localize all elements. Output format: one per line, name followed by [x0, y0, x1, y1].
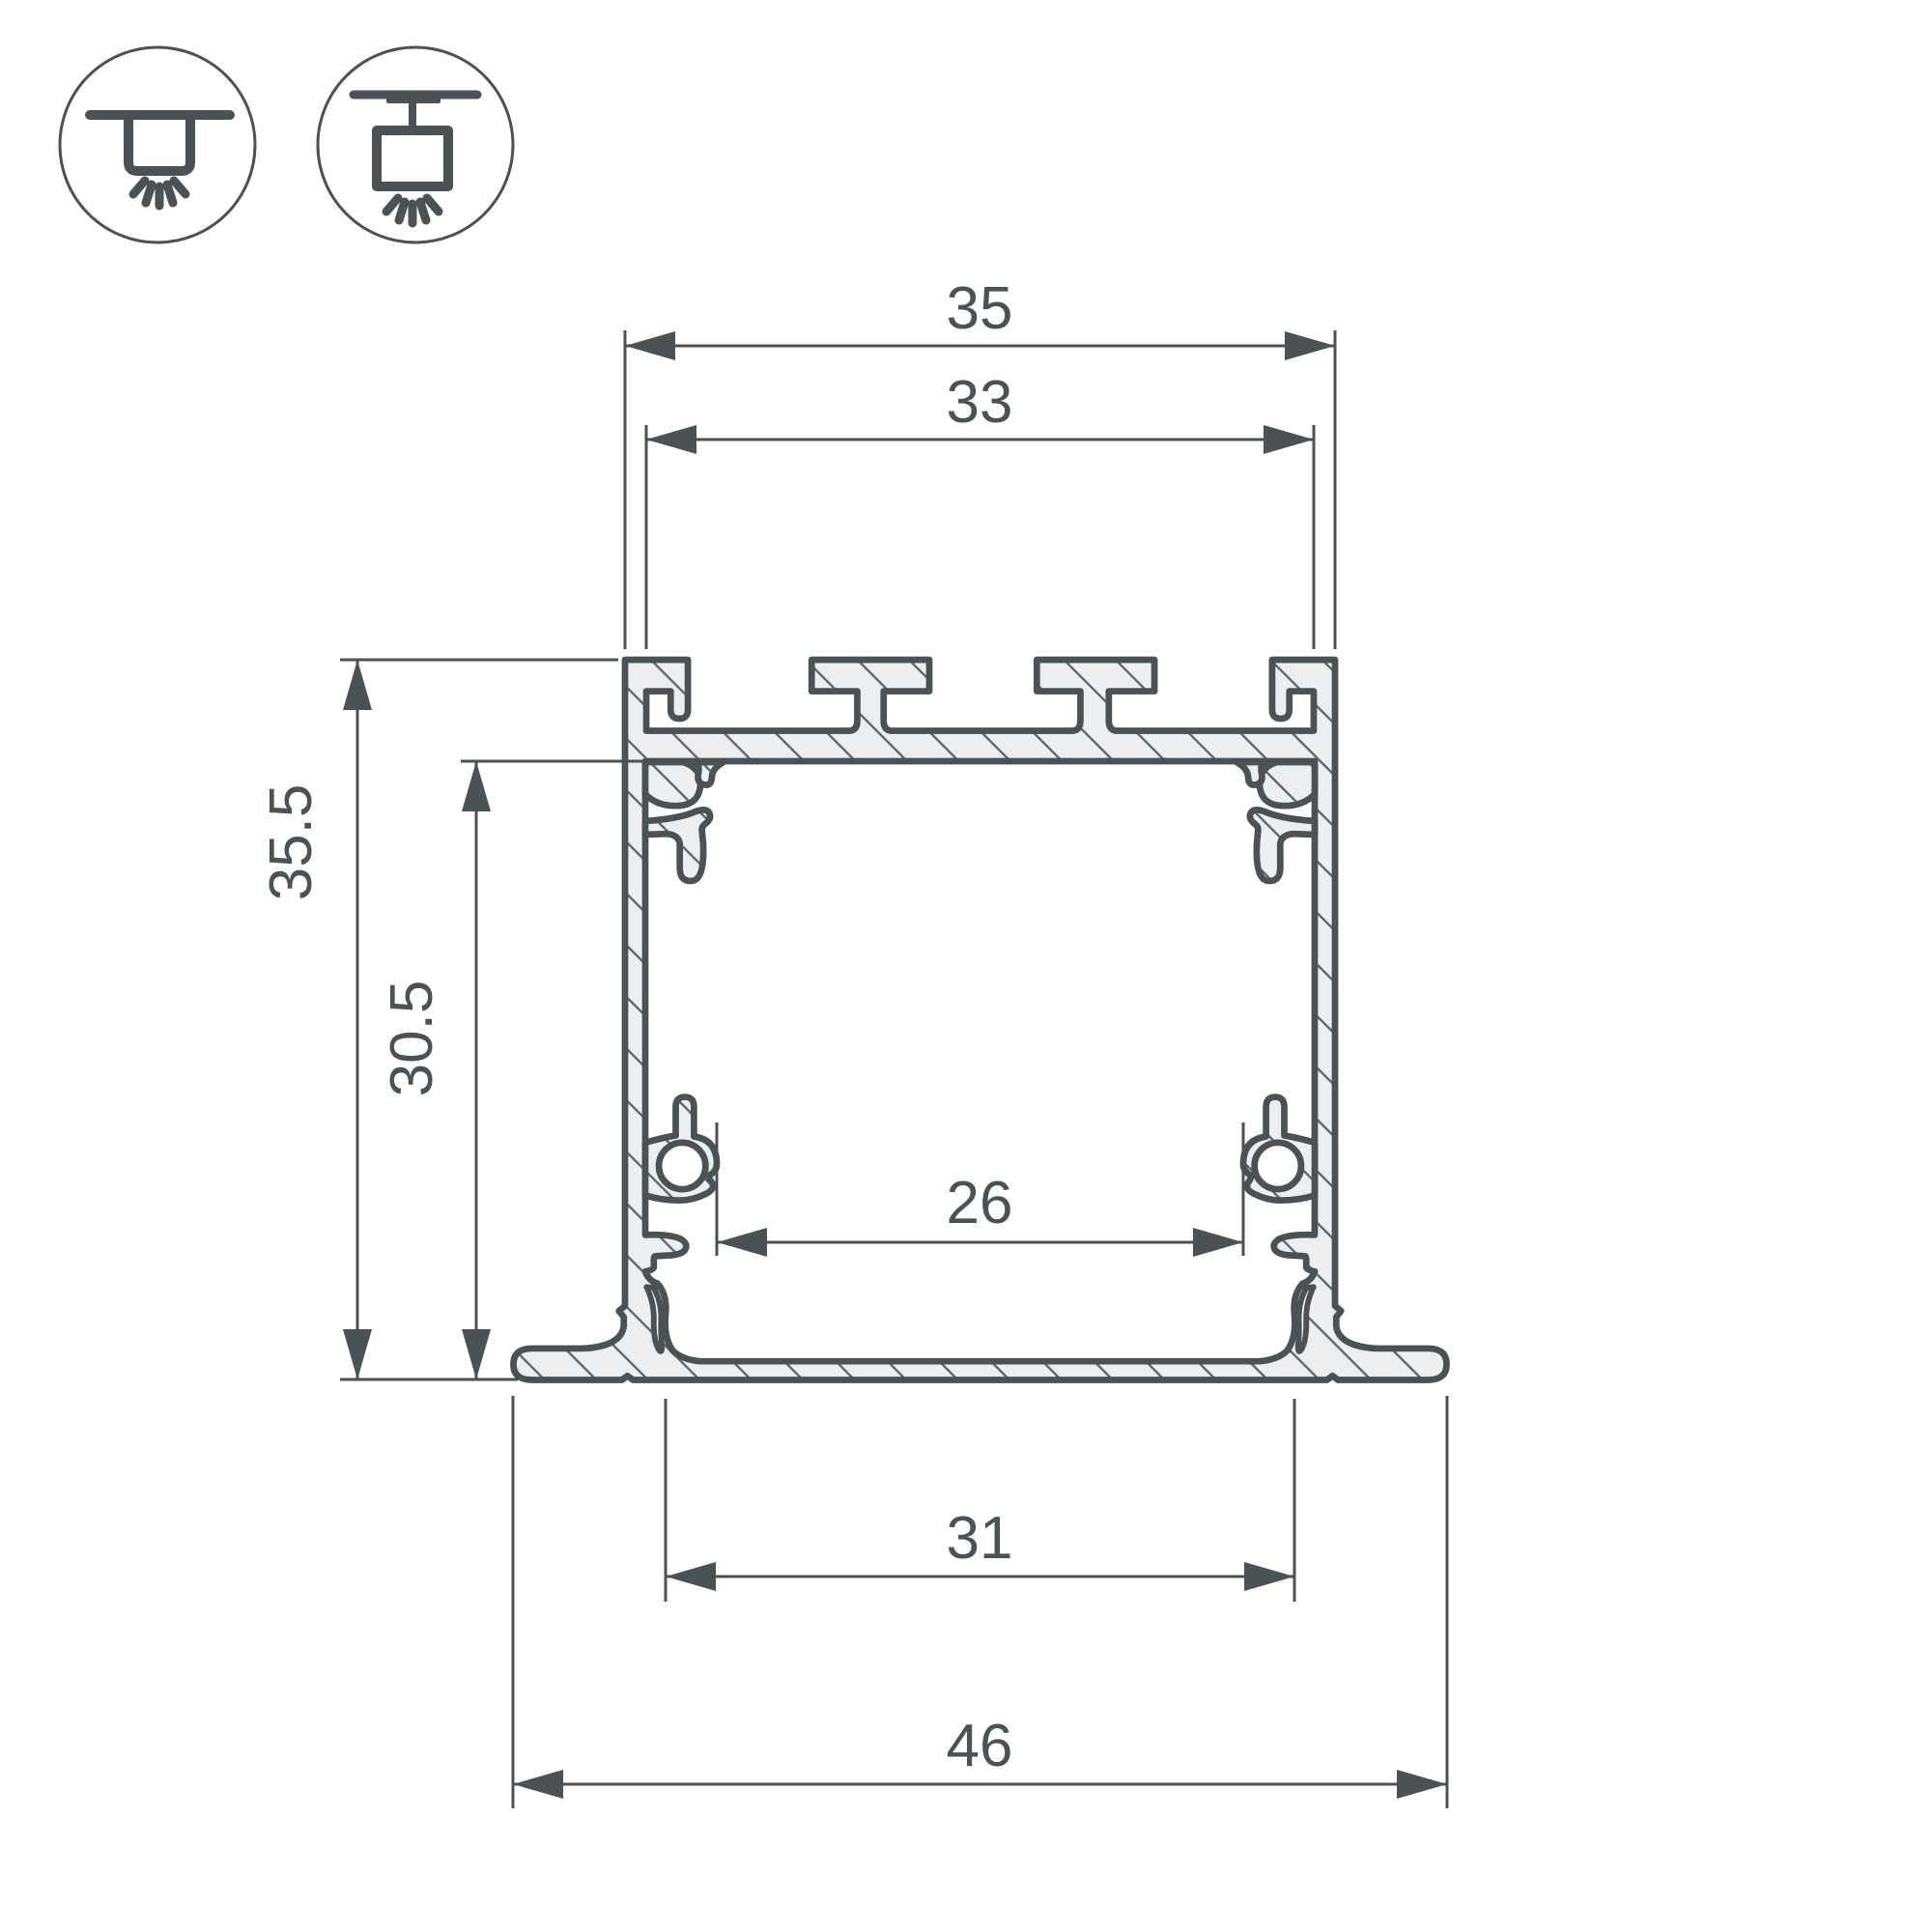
dimension-top-outer-width: 35 [625, 275, 1335, 649]
dim-label-46: 46 [947, 1713, 1013, 1779]
dim-label-30-5: 30.5 [379, 980, 445, 1097]
arrowhead [343, 1329, 372, 1379]
ceiling-curl [1236, 762, 1263, 784]
light-rays [386, 198, 439, 223]
arrowhead [343, 660, 372, 710]
profile-dimension-drawing: 35 33 35.5 30.5 [0, 0, 1932, 1932]
arrowhead [513, 1770, 563, 1799]
light-rays [133, 181, 185, 206]
upper-knob [1260, 762, 1315, 806]
dim-label-33: 33 [947, 369, 1013, 436]
arrowhead [462, 1329, 491, 1379]
arrowhead [1397, 1770, 1447, 1799]
arrowhead [462, 761, 491, 811]
arrowhead [625, 331, 675, 360]
dimension-annotations: 35 33 35.5 30.5 [258, 275, 1447, 1808]
profile-cross-section [514, 660, 1447, 1380]
arrowhead [666, 1562, 716, 1591]
arrowhead [1244, 1562, 1294, 1591]
recessed-mount-icon [60, 47, 255, 242]
arrowhead [646, 425, 696, 454]
dim-label-26: 26 [947, 1170, 1013, 1236]
arrowhead [1264, 425, 1314, 454]
ceiling-curl [697, 762, 724, 784]
dimension-clip-inner-width: 26 [717, 1122, 1243, 1257]
dimension-opening-width: 31 [666, 1399, 1294, 1602]
arrowhead [717, 1228, 767, 1257]
icon-circle [60, 47, 255, 242]
dimension-inner-height: 30.5 [379, 761, 663, 1379]
arrowhead [1193, 1228, 1243, 1257]
dim-label-31: 31 [947, 1505, 1013, 1572]
mounting-icons [60, 47, 513, 242]
surface-mount-icon [318, 47, 513, 242]
dimension-top-inner-width: 33 [646, 369, 1314, 649]
clip-screw-hole [1255, 1143, 1301, 1189]
upper-hook [1250, 810, 1315, 881]
arrowhead [1285, 331, 1335, 360]
technical-drawing-page: 35 33 35.5 30.5 [0, 0, 1932, 1932]
upper-knob [645, 762, 700, 806]
dim-label-35: 35 [947, 275, 1013, 342]
clip-screw-hole [659, 1143, 705, 1189]
dimension-flange-width: 46 [513, 1396, 1447, 1808]
dim-label-35-5: 35.5 [258, 784, 325, 901]
upper-hook [645, 810, 710, 881]
